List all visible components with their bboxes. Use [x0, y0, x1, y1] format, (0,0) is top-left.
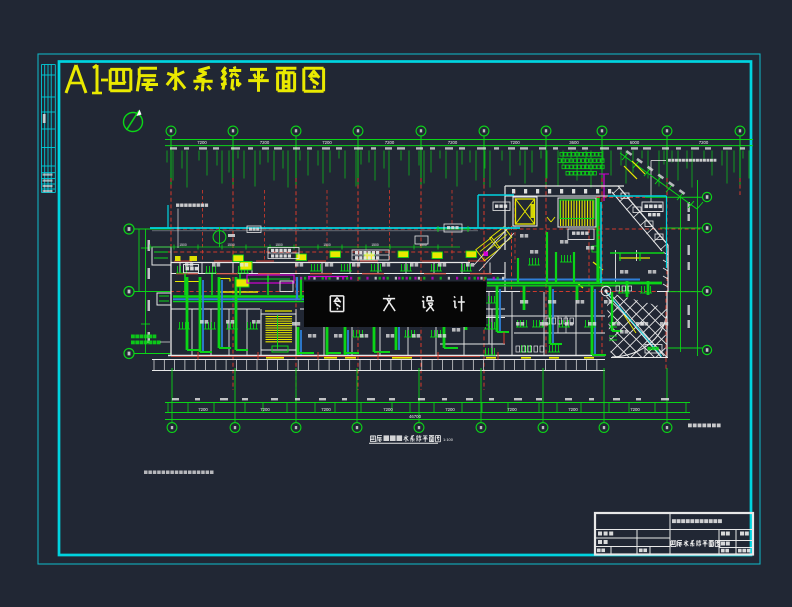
svg-text:7200: 7200	[385, 140, 395, 145]
svg-text:46700: 46700	[409, 414, 422, 419]
svg-text:1500: 1500	[179, 243, 187, 247]
svg-text:1500: 1500	[227, 243, 235, 247]
svg-text:7200: 7200	[383, 407, 393, 412]
svg-text:7200: 7200	[630, 407, 640, 412]
svg-text:7200: 7200	[260, 140, 270, 145]
svg-text:7200: 7200	[568, 407, 578, 412]
svg-text:6000: 6000	[630, 140, 640, 145]
svg-text:7200: 7200	[198, 407, 208, 412]
svg-text:7200: 7200	[260, 407, 270, 412]
svg-text:7200: 7200	[448, 140, 458, 145]
svg-text:7200: 7200	[321, 407, 331, 412]
svg-text:1500: 1500	[275, 243, 283, 247]
svg-text:7200: 7200	[445, 407, 455, 412]
svg-text:7200: 7200	[507, 407, 517, 412]
svg-text:1:100: 1:100	[443, 437, 454, 442]
svg-text:7200: 7200	[197, 140, 207, 145]
svg-text:7200: 7200	[510, 140, 520, 145]
svg-text:7200: 7200	[322, 140, 332, 145]
svg-text:3600: 3600	[569, 140, 579, 145]
svg-text:7200: 7200	[699, 140, 709, 145]
svg-text:1500: 1500	[371, 243, 379, 247]
svg-text:1500: 1500	[323, 243, 331, 247]
